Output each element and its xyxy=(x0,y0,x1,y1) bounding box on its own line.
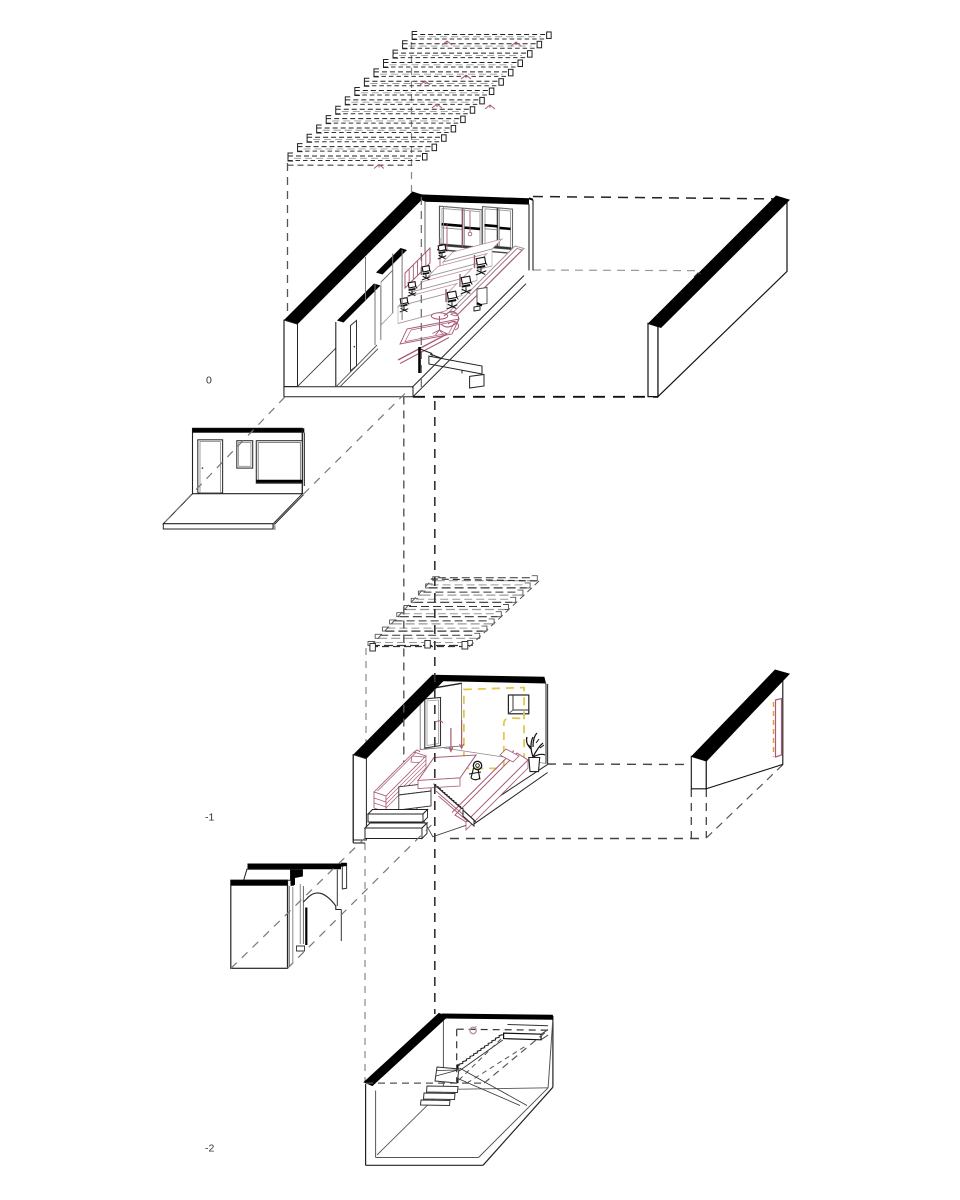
svg-text:-1: -1 xyxy=(205,812,214,824)
svg-text:-2: -2 xyxy=(205,1143,214,1155)
svg-text:0: 0 xyxy=(206,375,212,387)
